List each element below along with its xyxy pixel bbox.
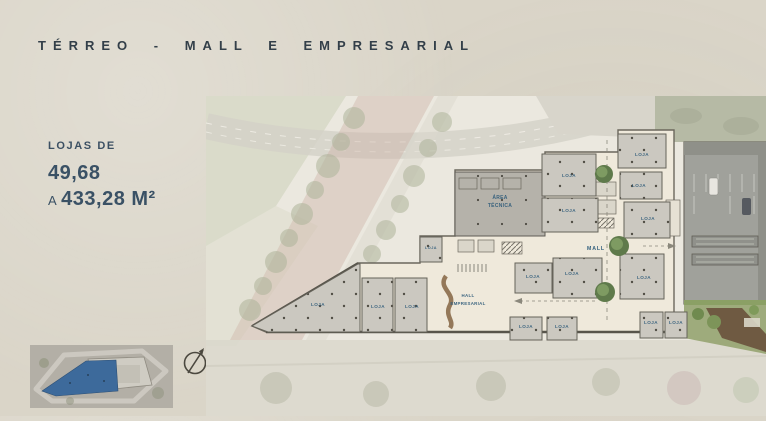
- room-label-loja: LOJA: [555, 324, 569, 329]
- site-minimap: [30, 345, 173, 408]
- room-label-loja: LOJA: [644, 320, 658, 325]
- room-label-loja: LOJA: [637, 275, 651, 280]
- room-label-loja: LOJA: [425, 246, 437, 250]
- car-white: [709, 178, 718, 195]
- store-size-max: A433,28 M²: [48, 188, 156, 211]
- room-label-loja: LOJA: [562, 173, 576, 178]
- room-label-loja: LOJA: [632, 183, 646, 188]
- room-label-loja: LOJA: [635, 152, 649, 157]
- room-label-loja: LOJA: [526, 274, 540, 279]
- hall-empresarial-label-line2: EMPRESARIAL: [450, 301, 485, 306]
- floor-plan-image: LOJALOJALOJALOJALOJALOJALOJALOJALOJALOJA…: [206, 96, 766, 416]
- store-size-info: LOJAS DE 49,68 A433,28 M²: [48, 140, 156, 211]
- floor-plan: LOJALOJALOJALOJALOJALOJALOJALOJALOJALOJA…: [206, 96, 766, 416]
- room-label-loja: LOJA: [562, 208, 576, 213]
- site-minimap-image: [30, 345, 173, 408]
- mall-label: MALL: [587, 246, 605, 252]
- hall-empresarial-label-line1: HALL: [462, 293, 475, 298]
- room-label-loja: LOJA: [311, 302, 325, 307]
- room-label-loja: LOJA: [519, 324, 533, 329]
- street-bottom: [206, 340, 766, 416]
- room-label-loja: LOJA: [371, 304, 385, 309]
- area-tecnica-label-line2: TÉCNICA: [488, 201, 512, 209]
- page-title: TÉRREO - MALL E EMPRESARIAL: [38, 38, 475, 53]
- store-size-max-value: 433,28 M²: [61, 188, 156, 210]
- room-label-loja: LOJA: [641, 216, 655, 221]
- store-size-label: LOJAS DE: [48, 140, 156, 152]
- car-dark: [742, 198, 751, 215]
- range-prefix: A: [48, 193, 57, 208]
- room-label-loja: LOJA: [669, 320, 683, 325]
- store-size-min-value: 49,68: [48, 162, 156, 185]
- room-label-loja: LOJA: [565, 271, 579, 276]
- room-label-loja: LOJA: [405, 304, 419, 309]
- area-tecnica-label-line1: ÁREA: [492, 194, 507, 201]
